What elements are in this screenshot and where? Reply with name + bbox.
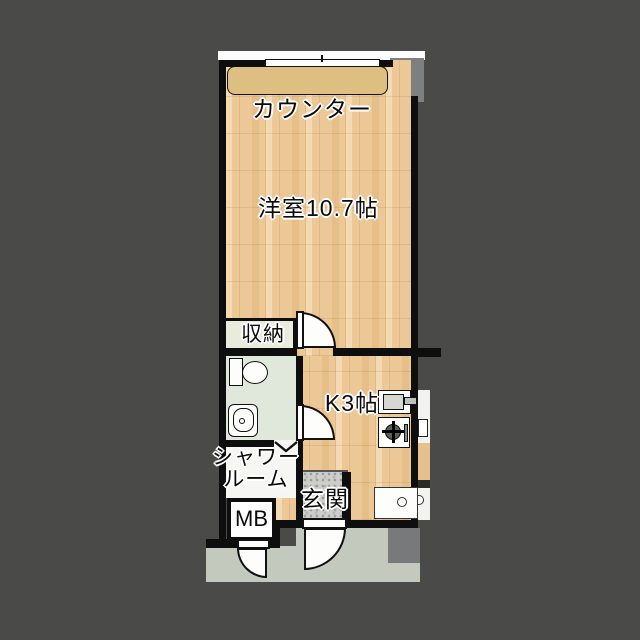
- washing-machine-pan: [374, 487, 418, 519]
- sink-drain-icon: [239, 418, 245, 424]
- wall-kitchen-upper: [296, 356, 303, 404]
- wall-divider-right: [333, 348, 418, 356]
- floorplan-canvas: カウンター 洋室10.7帖 収納 K3帖 シャワー ルーム 玄関 MB: [0, 0, 640, 640]
- shower-room-label-line1: シャワー: [211, 447, 301, 469]
- entrance-door-leaf: [302, 518, 347, 529]
- kitchen-sink-basin-icon: [383, 394, 404, 410]
- main-room-door-leaf: [296, 311, 304, 349]
- wall-divider-left: [219, 348, 297, 356]
- wall-top-right: [380, 60, 393, 67]
- kitchen-door-leaf: [296, 404, 304, 441]
- counter: [227, 66, 388, 95]
- wall-right: [411, 96, 418, 528]
- neighbor-strip-wood: [418, 443, 430, 480]
- kitchen-faucet-icon: [404, 397, 417, 405]
- meter-box-label: MB: [231, 507, 272, 530]
- stove-burner-cross-v: [392, 421, 395, 443]
- storage-top-line: [226, 318, 296, 321]
- shower-room-label-line2: ルーム: [217, 469, 295, 491]
- neighbor-strip-dark: [418, 480, 430, 488]
- window-center-tick: [321, 55, 323, 62]
- counter-label: カウンター: [252, 97, 372, 121]
- wall-stub-right: [418, 348, 441, 357]
- mb-door-leaf: [237, 539, 270, 549]
- pillar-bottom-right: [388, 528, 420, 563]
- main-room-label: 洋室10.7帖: [258, 196, 376, 220]
- kitchen-label: K3帖: [324, 391, 380, 415]
- storage-label: 収納: [236, 324, 290, 346]
- stove-side-bar: [404, 424, 408, 442]
- toilet-tank-icon: [229, 358, 243, 386]
- neighbor-strip-box: [418, 419, 428, 437]
- washing-machine-drain-icon: [397, 497, 407, 507]
- toilet-bowl-icon: [242, 361, 268, 384]
- entrance-label: 玄関: [301, 487, 349, 511]
